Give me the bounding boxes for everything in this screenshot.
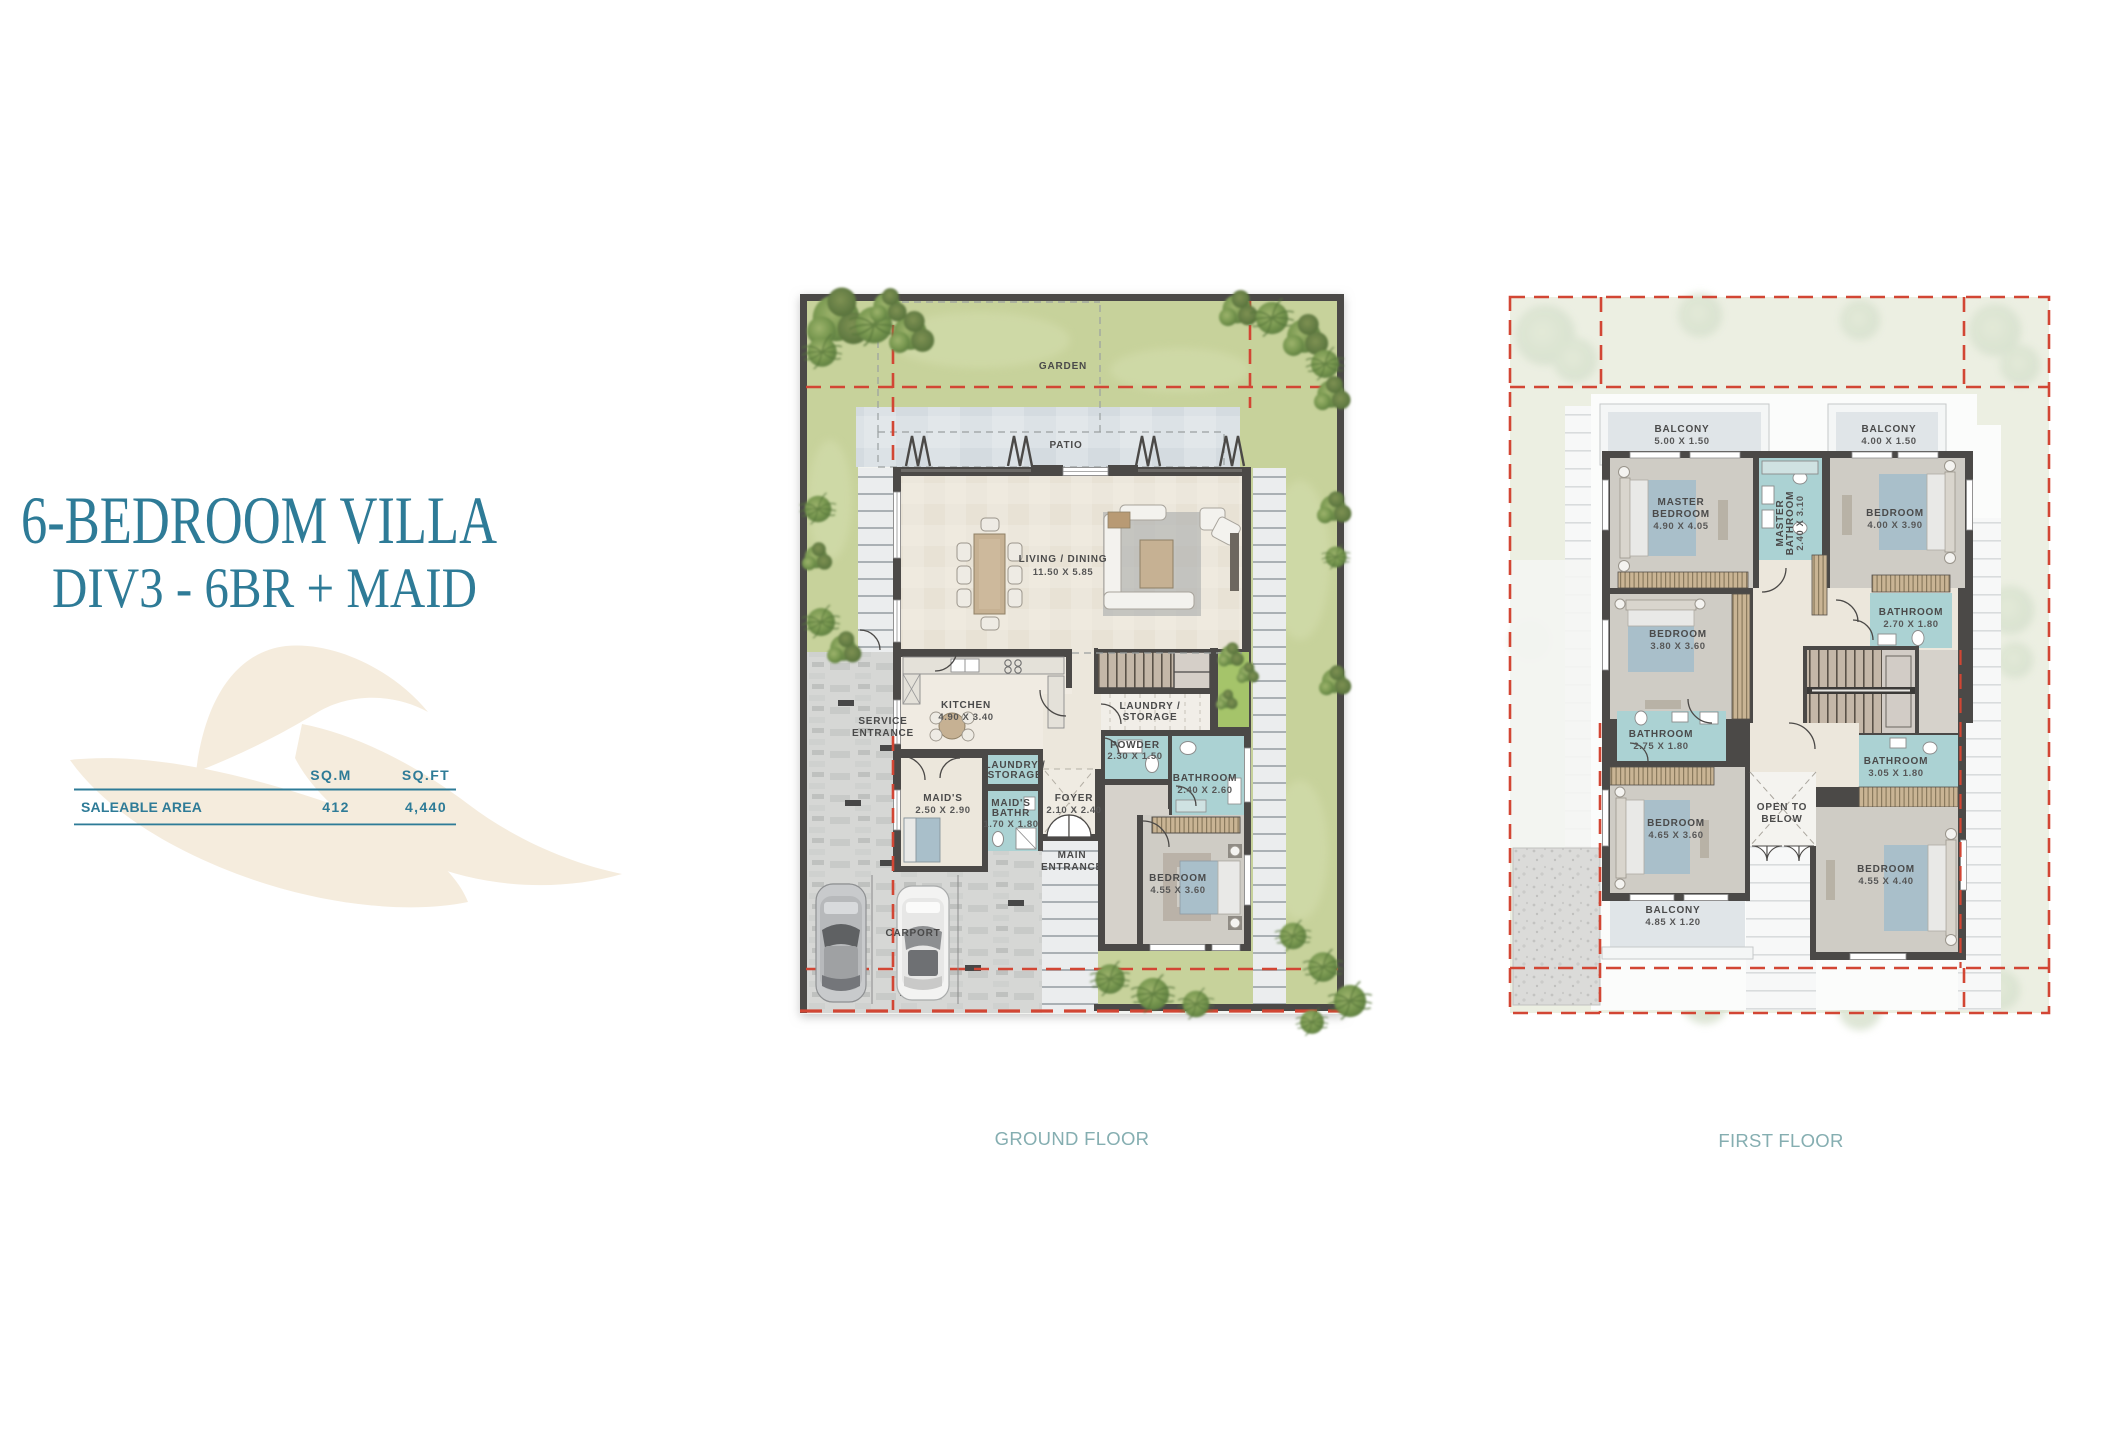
svg-text:BATHROOM: BATHROOM [1173,773,1238,784]
svg-text:5.00 X 1.50: 5.00 X 1.50 [1654,436,1709,447]
svg-text:SALEABLE AREA: SALEABLE AREA [81,799,202,815]
svg-text:4.90 X 3.40: 4.90 X 3.40 [938,712,993,723]
svg-text:KITCHEN: KITCHEN [941,700,991,711]
svg-text:BALCONY: BALCONY [1645,905,1700,916]
svg-text:6-BEDROOM VILLA: 6-BEDROOM VILLA [21,482,497,558]
svg-text:11.50 X 5.85: 11.50 X 5.85 [1033,567,1094,578]
svg-text:BATHROOM: BATHROOM [1629,729,1694,740]
svg-text:BALCONY: BALCONY [1654,424,1709,435]
svg-text:OPEN TO: OPEN TO [1757,802,1807,813]
svg-text:MAIN: MAIN [1058,850,1087,861]
svg-text:ENTRANCE: ENTRANCE [852,728,914,739]
svg-text:BEDROOM: BEDROOM [1149,873,1207,884]
svg-text:FIRST FLOOR: FIRST FLOOR [1718,1130,1843,1151]
svg-text:GARDEN: GARDEN [1039,361,1087,372]
svg-text:BATHROOM: BATHROOM [1864,756,1929,767]
svg-text:2.30 X 1.50: 2.30 X 1.50 [1107,751,1162,762]
svg-text:2.70 X 1.80: 2.70 X 1.80 [1883,619,1938,630]
svg-text:BATHROOM: BATHROOM [1879,607,1944,618]
svg-text:PATIO: PATIO [1049,440,1082,451]
svg-text:MASTER: MASTER [1657,497,1704,508]
svg-text:2.40 X 2.60: 2.40 X 2.60 [1177,785,1232,796]
svg-text:4.85 X 1.20: 4.85 X 1.20 [1645,917,1700,928]
svg-text:2.10 X 2.40: 2.10 X 2.40 [1046,805,1101,816]
svg-text:CARPORT: CARPORT [885,928,940,939]
svg-text:FOYER: FOYER [1055,793,1093,804]
svg-text:SQ.FT: SQ.FT [402,767,450,783]
svg-text:STORAGE: STORAGE [988,770,1043,781]
svg-text:4.00 X 1.50: 4.00 X 1.50 [1861,436,1916,447]
svg-text:MAID'S: MAID'S [923,793,962,804]
svg-text:4.55 X 4.40: 4.55 X 4.40 [1858,876,1913,887]
svg-text:POWDER: POWDER [1110,740,1160,751]
svg-text:4.55 X 3.60: 4.55 X 3.60 [1150,885,1205,896]
svg-text:3.05 X 1.80: 3.05 X 1.80 [1868,768,1923,779]
svg-text:412: 412 [322,799,350,815]
svg-text:BEDROOM: BEDROOM [1857,864,1915,875]
svg-text:SERVICE: SERVICE [858,716,907,727]
svg-text:4.65 X 3.60: 4.65 X 3.60 [1648,830,1703,841]
svg-text:4,440: 4,440 [405,799,447,815]
svg-text:BEDROOM: BEDROOM [1649,629,1707,640]
svg-text:BEDROOM: BEDROOM [1647,818,1705,829]
svg-text:3.80 X 3.60: 3.80 X 3.60 [1650,641,1705,652]
svg-text:4.00 X 3.90: 4.00 X 3.90 [1867,520,1922,531]
svg-text:STORAGE: STORAGE [1123,712,1178,723]
svg-text:BELOW: BELOW [1761,814,1802,825]
svg-text:1.70 X 1.80: 1.70 X 1.80 [983,819,1038,830]
svg-text:2.50 X 2.90: 2.50 X 2.90 [915,805,970,816]
svg-text:BALCONY: BALCONY [1861,424,1916,435]
svg-text:SQ.M: SQ.M [310,767,351,783]
svg-text:2.40 X 3.10: 2.40 X 3.10 [1795,495,1806,550]
svg-text:2.75 X 1.80: 2.75 X 1.80 [1633,741,1688,752]
svg-text:LIVING / DINING: LIVING / DINING [1019,554,1108,565]
svg-text:4.90 X 4.05: 4.90 X 4.05 [1653,521,1708,532]
svg-text:BEDROOM: BEDROOM [1652,509,1710,520]
svg-text:DIV3 - 6BR + MAID: DIV3 - 6BR + MAID [52,557,477,620]
svg-text:LAUNDRY /: LAUNDRY / [1119,701,1180,712]
svg-text:ENTRANCE: ENTRANCE [1041,862,1103,873]
svg-text:BEDROOM: BEDROOM [1866,508,1924,519]
svg-text:GROUND FLOOR: GROUND FLOOR [995,1128,1150,1149]
svg-text:BATHR: BATHR [992,808,1030,819]
